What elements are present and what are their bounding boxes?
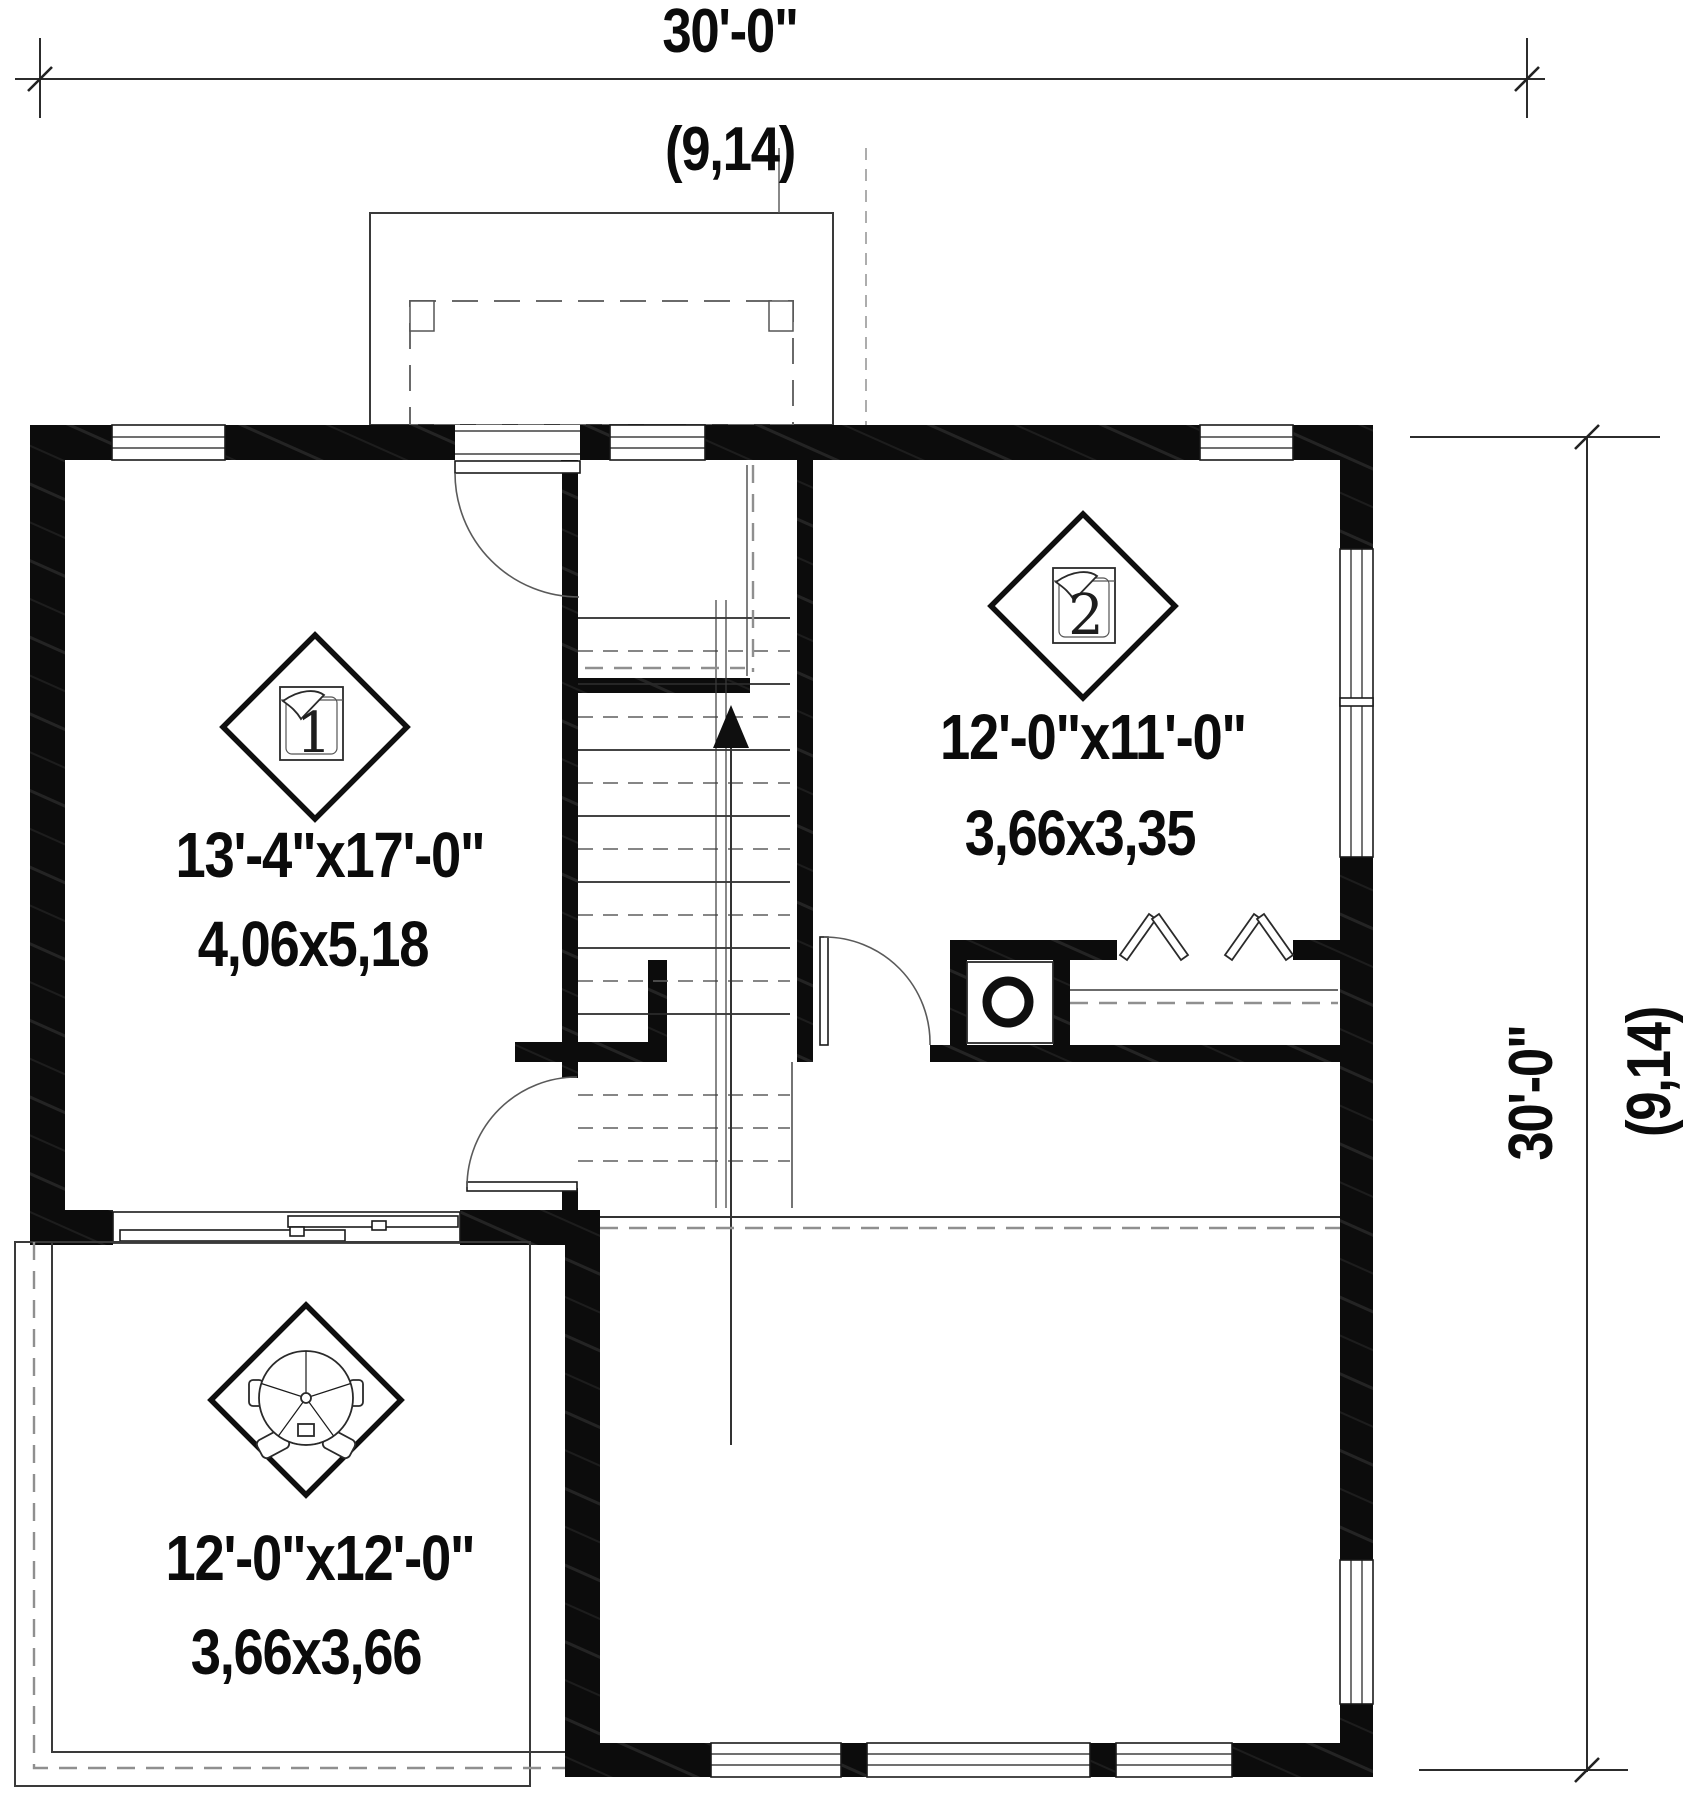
hall-door-leaf: [820, 937, 828, 1045]
balcony-notch: [769, 301, 793, 331]
terrace-marker: [211, 1305, 401, 1495]
dimension-top-feet: 30'-0": [662, 1, 797, 63]
bedroom1-number: 1: [296, 701, 332, 766]
bedroom1-size-feet: 13'-4"x17'-0": [176, 823, 485, 887]
window-top-left: [112, 425, 225, 460]
terrace-size-feet: 12'-0"x12'-0": [166, 1526, 475, 1590]
bedroom1-door: [467, 1077, 577, 1191]
bedroom2-size-feet: 12'-0"x11'-0": [940, 705, 1246, 769]
bedroom1-size-meters: 4,06x5,18: [198, 912, 429, 976]
window-right-lower: [1340, 1560, 1373, 1704]
dimension-top-meters: (9,14): [665, 119, 795, 181]
window-top-entry: [610, 425, 705, 460]
slider-handle: [290, 1227, 304, 1236]
balcony-outline: [370, 148, 866, 425]
dimension-right-meters: (9,14): [1619, 1007, 1681, 1137]
sliding-patio-door: [113, 1212, 460, 1243]
bedroom1-marker: 1: [223, 635, 407, 819]
bedroom2-size-meters: 3,66x3,35: [965, 801, 1196, 865]
window-bottom-3: [1116, 1743, 1232, 1777]
entry-door-leaf: [455, 461, 580, 473]
hall-door-swing: [824, 937, 930, 1045]
window-bottom-2: [867, 1743, 1090, 1777]
floor-transition: [600, 1217, 1340, 1228]
slider-handle: [372, 1221, 386, 1230]
bedroom1-door-swing: [467, 1077, 577, 1187]
window-right-bedroom2: [1340, 549, 1373, 857]
bedroom1-door-leaf: [467, 1182, 577, 1191]
bedroom2-number: 2: [1068, 583, 1104, 648]
laundry-closet: [967, 962, 1053, 1043]
window-top-right: [1200, 425, 1293, 460]
floor-plan: 1 2: [0, 0, 1686, 1800]
window-bottom-1: [711, 1743, 841, 1777]
hall-door: [820, 937, 930, 1045]
entry-door: [455, 425, 580, 597]
entry-door-swing: [455, 473, 579, 597]
vestibule-closet: [585, 465, 753, 676]
washer-box: [967, 962, 1053, 1043]
staircase: [578, 600, 792, 1445]
slider-panel: [120, 1230, 345, 1241]
terrace-size-meters: 3,66x3,66: [191, 1620, 422, 1684]
balcony-notch: [410, 301, 434, 331]
dimension-right-feet: 30'-0": [1501, 1025, 1563, 1160]
interior-walls: [515, 453, 1340, 1212]
stairs-up-arrow-icon: [713, 705, 749, 748]
bifold-doors-icon: [1120, 914, 1293, 960]
bedroom2-marker: 2: [991, 514, 1175, 698]
